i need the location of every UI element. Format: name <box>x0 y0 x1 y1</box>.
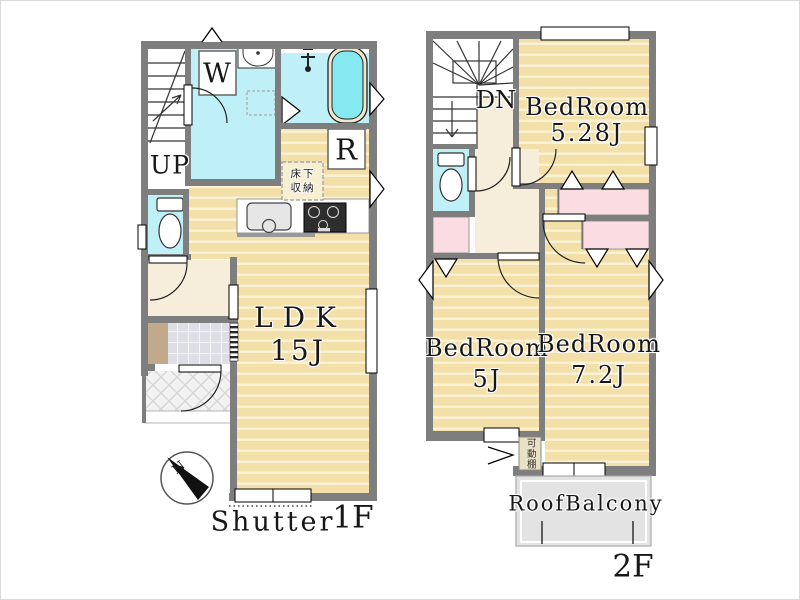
closet-c <box>583 221 649 249</box>
bedroom-b-name-label: BedRoom <box>425 336 549 360</box>
ldk-doorway <box>229 285 238 319</box>
movable-shelf-label: 可動棚 <box>525 438 535 470</box>
closet-a <box>559 189 649 215</box>
ldk-side-window <box>366 289 377 373</box>
kitchen-counter <box>237 199 369 237</box>
washroom-door <box>184 85 192 125</box>
toilet-icon-1f <box>157 198 183 248</box>
fridge-label: R <box>335 136 357 165</box>
bathtub-icon <box>328 47 367 123</box>
bedroom-c-door <box>543 214 585 221</box>
compass-icon <box>161 452 213 504</box>
bedroom-a-top-window <box>541 27 629 40</box>
ldk-size-label: 15J <box>270 337 326 365</box>
underfloor-line2: 収納 <box>291 182 316 194</box>
shutter-label: Shutter <box>211 509 336 536</box>
front-door <box>179 365 221 372</box>
entrance-tile <box>168 323 230 364</box>
shoe-cabinet <box>147 323 168 364</box>
bedroom-a-size-label: 5.28J <box>550 121 623 145</box>
bedroom-a-door <box>512 148 520 186</box>
up-label: UP <box>150 153 190 178</box>
washer-label: W <box>203 61 231 88</box>
porch <box>146 371 230 411</box>
floor2-label: 2F <box>612 552 653 583</box>
bedroom-a-side-window <box>645 127 657 165</box>
toilet-icon-2f <box>438 153 464 201</box>
toilet-window <box>138 225 146 249</box>
bedroom-c-name-label: BedRoom <box>537 332 661 356</box>
hallway-1f <box>147 260 230 316</box>
bedroom-b-door <box>498 253 539 260</box>
floor1-label: 1F <box>332 503 373 534</box>
hallway-2f <box>475 149 539 259</box>
underfloor-storage-label: 床下 収納 <box>291 167 316 195</box>
hall-door <box>149 256 187 263</box>
bedroom-a-name-label: BedRoom <box>525 95 649 119</box>
bedroom-b-bottom-window <box>484 428 519 442</box>
porch-step <box>145 411 233 423</box>
vent-window-icon <box>202 28 222 42</box>
closet-b <box>433 217 469 253</box>
dn-label: DN <box>476 88 516 112</box>
floor-plan-drawing <box>1 1 800 600</box>
underfloor-line1: 床下 <box>291 168 316 180</box>
floor1-plan <box>138 28 384 506</box>
floor-plan-page: UP W R 床下 収納 LDK 15J Shutter 1F N DN Bed… <box>0 0 800 600</box>
stove-icon <box>304 203 346 232</box>
roof-balcony-label: RoofBalcony <box>508 494 663 515</box>
bedroom-b-size-label: 5J <box>473 367 502 391</box>
ldk-room-label: LDK <box>254 304 346 332</box>
tall-cabinet <box>230 323 238 361</box>
bedroom-c-size-label: 7.2J <box>571 363 627 387</box>
toilet-door-2f <box>468 157 476 191</box>
